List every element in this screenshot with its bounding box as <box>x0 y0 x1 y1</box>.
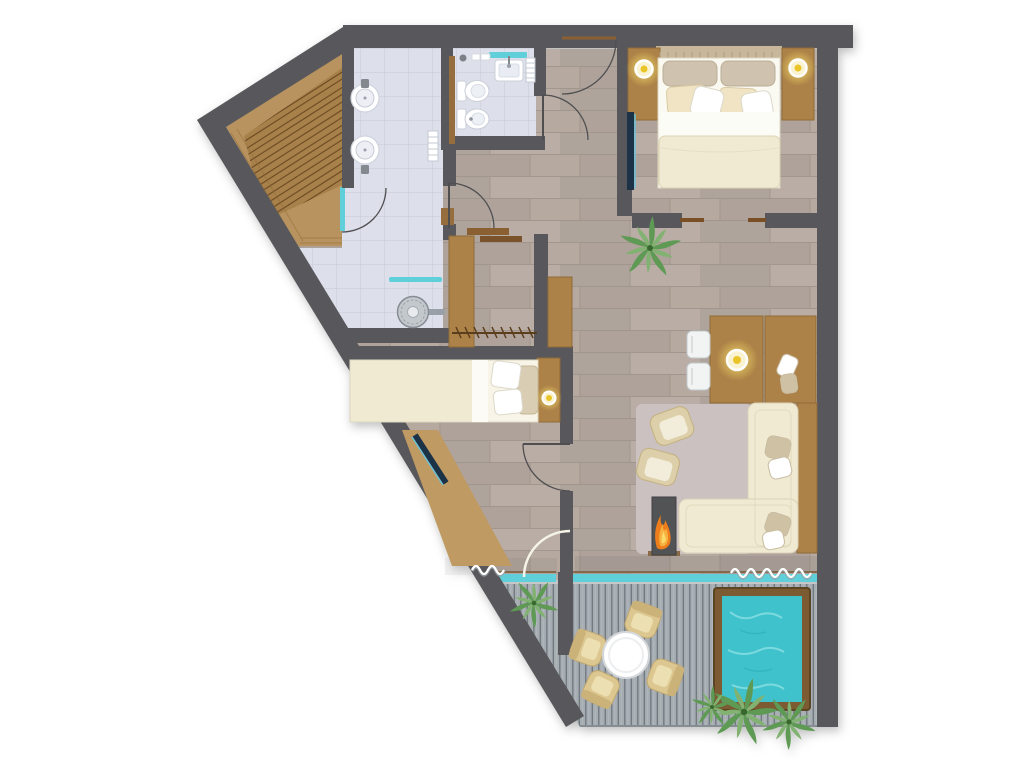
wall-bedroom-south-b <box>765 213 817 228</box>
wall-window-stub <box>558 572 573 655</box>
pendant-lamp <box>716 339 758 381</box>
shower-glass-screen <box>389 277 442 282</box>
wall-wc-bottom <box>441 136 545 150</box>
wall-bedroom-south-a <box>632 213 682 228</box>
bedside-lamp <box>536 385 562 411</box>
towel-radiator <box>428 131 438 161</box>
wall-wc-right <box>534 46 546 96</box>
closet-lintel <box>467 228 509 235</box>
double-bed <box>658 58 780 188</box>
wall-bedroom2-east-a <box>560 346 573 444</box>
wall-right <box>817 48 838 727</box>
wall-console <box>797 403 817 553</box>
wall-sauna <box>342 46 354 188</box>
wall-bedroom2-east-b <box>560 491 573 581</box>
log-burner-fireplace <box>648 497 680 556</box>
wc-wood-strip <box>449 56 455 144</box>
bidet <box>457 109 489 129</box>
door-frame-block <box>441 208 454 225</box>
master-headboard <box>656 46 782 58</box>
shelf <box>481 54 490 60</box>
plunge-pool <box>714 588 810 710</box>
wall-closet <box>534 234 548 348</box>
floor-plan <box>197 25 853 759</box>
bedside-lamp <box>626 51 662 87</box>
towel-radiator <box>526 58 535 82</box>
sliding-door-track-a <box>680 218 704 222</box>
toilet <box>457 81 489 102</box>
wardrobe-shelf <box>548 277 572 347</box>
living-window-glass <box>573 574 817 582</box>
shelf <box>472 54 480 60</box>
closet-lintel-2 <box>480 236 522 242</box>
wall-bath-south <box>334 328 458 343</box>
wardrobe-cabinet <box>449 236 474 347</box>
floor-plan-page: Top-down architectural floor plan: sauna… <box>0 0 1024 768</box>
sauna-glass-door <box>340 187 345 231</box>
floor-drain <box>460 55 467 62</box>
wall-bath-hall-a <box>443 150 456 186</box>
sliding-door-track-b <box>748 218 766 222</box>
floor-plan-canvas <box>0 0 1024 768</box>
master-tv <box>627 112 634 190</box>
wc-washbasin <box>495 56 523 81</box>
single-bed <box>350 360 538 422</box>
bedroom-window-glass <box>498 574 556 582</box>
bedside-lamp <box>780 50 816 86</box>
